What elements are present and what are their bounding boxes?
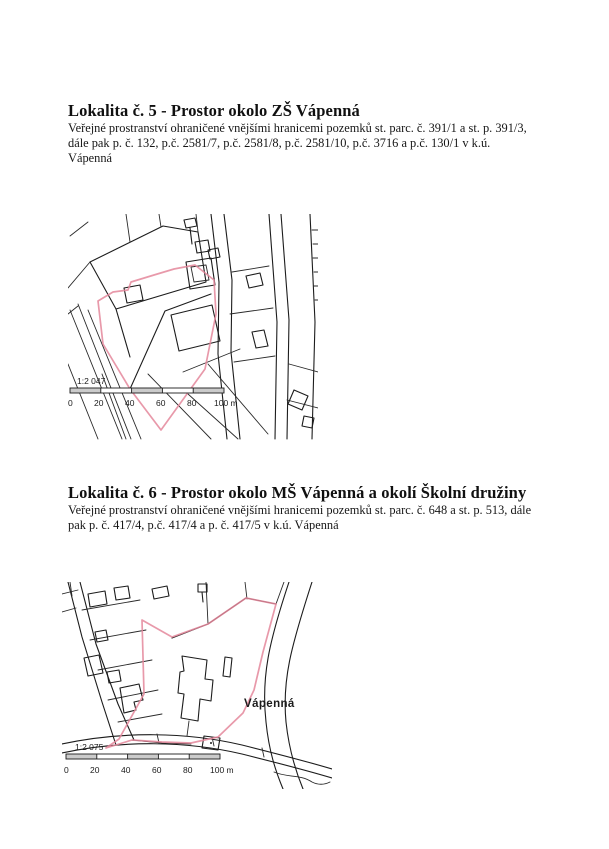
tick-label: 80	[183, 765, 193, 775]
tick-label: 100 m	[210, 765, 234, 775]
scale-text: 1:2 075	[75, 742, 104, 752]
tick-label: 60	[156, 398, 166, 408]
description-line: Vápenná	[68, 151, 527, 166]
section-1-description: Veřejné prostranství ohraničené vnějšími…	[68, 121, 527, 166]
section-1-heading: Lokalita č. 5 - Prostor okolo ZŠ Vápenná	[68, 101, 360, 121]
description-line: pak p. č. 417/4, p.č. 417/4 a p. č. 417/…	[68, 518, 531, 533]
tick-label: 0	[64, 765, 69, 775]
locality-boundary	[106, 598, 276, 748]
document-page: { "sections": [ { "heading": "Lokalita č…	[0, 0, 609, 849]
cadastral-map-locality-5: 1:2 047 0 20 40 60 80 100 m	[68, 214, 318, 440]
tick-label: 40	[121, 765, 131, 775]
tick-label: 20	[94, 398, 104, 408]
description-line: dále pak p. č. 132, p.č. 2581/7, p.č. 25…	[68, 136, 527, 151]
tick-label: 0	[68, 398, 73, 408]
scale-text: 1:2 047	[77, 376, 106, 386]
tick-label: 100 m	[214, 398, 238, 408]
tick-label: 20	[90, 765, 100, 775]
description-line: Veřejné prostranství ohraničené vnějšími…	[68, 503, 531, 518]
tick-label: 80	[187, 398, 197, 408]
place-label: Vápenná	[244, 698, 295, 710]
scale-bar: 1:2 047 0 20 40 60 80 100 m	[68, 376, 238, 408]
section-2-heading: Lokalita č. 6 - Prostor okolo MŠ Vápenná…	[68, 483, 526, 503]
section-2-description: Veřejné prostranství ohraničené vnějšími…	[68, 503, 531, 533]
description-line: Veřejné prostranství ohraničené vnějšími…	[68, 121, 527, 136]
tick-label: 40	[125, 398, 135, 408]
tick-label: 60	[152, 765, 162, 775]
cadastral-map-locality-6: Vápenná 1:2 075 0 20 40 60 80 100 m	[62, 582, 332, 789]
scale-bar: 1:2 075 0 20 40 60 80 100 m	[64, 742, 234, 775]
